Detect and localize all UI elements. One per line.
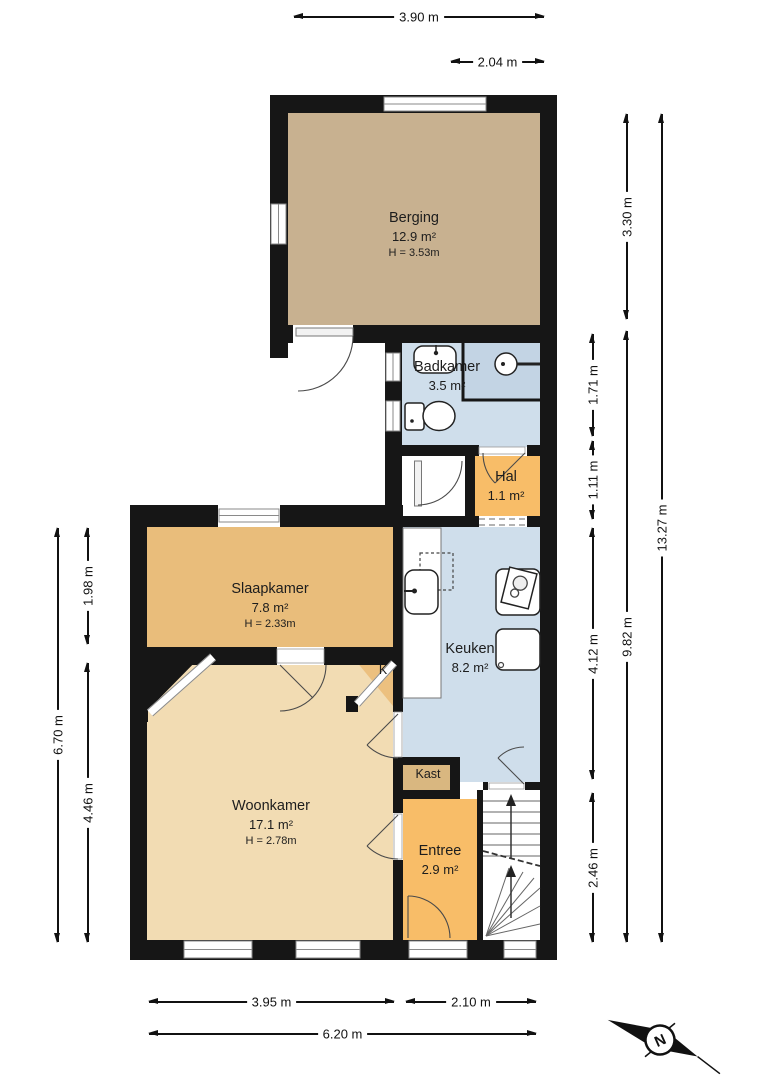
room-name: Kast xyxy=(415,767,440,781)
vestibule-door-leaf xyxy=(415,461,422,506)
dimension-bottom-left: 3.95 m xyxy=(148,995,395,1009)
toilet-bowl-icon xyxy=(423,402,455,431)
dimension-label: 2.10 m xyxy=(446,995,496,1010)
dimension-right-keuken: 4.12 m xyxy=(586,527,600,780)
dimension-label: 1.98 m xyxy=(81,561,96,611)
room-name: Keuken xyxy=(445,641,494,657)
floorplan-drawing xyxy=(0,0,764,1080)
dimension-right-lower: 9.82 m xyxy=(620,330,634,943)
room-label-entree: Entree 2.9 m² xyxy=(419,843,462,880)
dimension-label: 4.12 m xyxy=(586,629,601,679)
dimension-label: 1.71 m xyxy=(586,360,601,410)
room-name: K xyxy=(379,663,387,677)
dimension-label: 2.46 m xyxy=(586,843,601,893)
dimension-label: 3.30 m xyxy=(620,192,635,242)
dimension-left-upper: 1.98 m xyxy=(81,527,95,645)
room-name: Woonkamer xyxy=(232,798,310,814)
room-ceiling-height: H = 2.33m xyxy=(231,618,308,630)
dimension-label: 3.95 m xyxy=(247,995,297,1010)
room-name: Slaapkamer xyxy=(231,581,308,597)
room-area: 7.8 m² xyxy=(231,600,308,615)
compass-north-arrow: N xyxy=(596,1000,736,1080)
room-area: 3.5 m² xyxy=(414,378,480,393)
dimension-label: 3.90 m xyxy=(394,10,444,25)
room-area: 8.2 m² xyxy=(445,660,494,675)
room-ceiling-height: H = 2.78m xyxy=(232,835,310,847)
room-name: Badkamer xyxy=(414,359,480,375)
dimension-label: 2.04 m xyxy=(473,55,523,70)
room-area: 17.1 m² xyxy=(232,817,310,832)
floorplan-canvas: Berging 12.9 m² H = 3.53m Badkamer 3.5 m… xyxy=(0,0,764,1080)
dimension-left-full: 6.70 m xyxy=(51,527,65,943)
room-area: 2.9 m² xyxy=(419,862,462,877)
dimension-right-hal: 1.11 m xyxy=(586,440,600,520)
dimension-label: 4.46 m xyxy=(81,778,96,828)
dimension-label: 9.82 m xyxy=(620,612,635,662)
room-label-k-closet: K xyxy=(379,663,387,677)
room-label-hal: Hal 1.1 m² xyxy=(488,469,525,506)
dimension-top-partial: 2.04 m xyxy=(450,55,545,69)
room-label-kast: Kast xyxy=(415,767,440,781)
dimension-label: 13.27 m xyxy=(655,500,670,557)
dimension-bottom-right: 2.10 m xyxy=(405,995,537,1009)
room-label-keuken: Keuken 8.2 m² xyxy=(445,641,494,678)
dimension-right-berging: 3.30 m xyxy=(620,113,634,320)
room-label-slaapkamer: Slaapkamer 7.8 m² H = 2.33m xyxy=(231,581,308,630)
room-name: Hal xyxy=(488,469,525,485)
dimension-bottom-full: 6.20 m xyxy=(148,1027,537,1041)
dimension-right-entree: 2.46 m xyxy=(586,792,600,943)
room-label-berging: Berging 12.9 m² H = 3.53m xyxy=(388,210,439,259)
compass-big-needle xyxy=(605,1012,651,1042)
shower-head-icon xyxy=(495,353,517,375)
berging-door-leaf xyxy=(296,328,353,336)
room-name: Berging xyxy=(388,210,439,226)
dimension-top-full: 3.90 m xyxy=(293,10,545,24)
dimension-label: 1.11 m xyxy=(586,456,601,505)
dimension-label: 6.20 m xyxy=(318,1027,368,1042)
toilet-tank xyxy=(405,403,424,430)
dimension-right-full: 13.27 m xyxy=(655,113,669,943)
dimension-left-lower: 4.46 m xyxy=(81,662,95,943)
room-label-woonkamer: Woonkamer 17.1 m² H = 2.78m xyxy=(232,798,310,847)
room-name: Entree xyxy=(419,843,462,859)
room-label-badkamer: Badkamer 3.5 m² xyxy=(414,359,480,396)
dimension-right-badkamer: 1.71 m xyxy=(586,333,600,437)
room-area: 12.9 m² xyxy=(388,229,439,244)
dimension-label: 6.70 m xyxy=(51,710,66,760)
room-ceiling-height: H = 3.53m xyxy=(388,247,439,259)
room-area: 1.1 m² xyxy=(488,488,525,503)
